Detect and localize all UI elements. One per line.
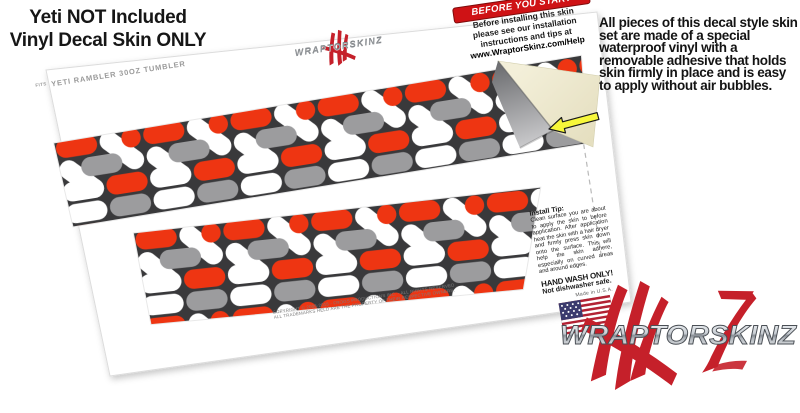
headline-line2: Vinyl Decal Skin ONLY (6, 29, 210, 52)
watermark-logo: WRAPTORSKINZ (556, 276, 800, 408)
watermark-brand-text: WRAPTORSKINZ (560, 320, 798, 350)
fits-prefix: FITS (35, 81, 47, 88)
headline-line1: Yeti NOT Included (6, 6, 210, 29)
headline: Yeti NOT Included Vinyl Decal Skin ONLY (6, 6, 210, 52)
description-text: All pieces of this decal style skin set … (599, 17, 799, 93)
install-tip-body: Clean surface you are about to apply the… (530, 205, 615, 275)
